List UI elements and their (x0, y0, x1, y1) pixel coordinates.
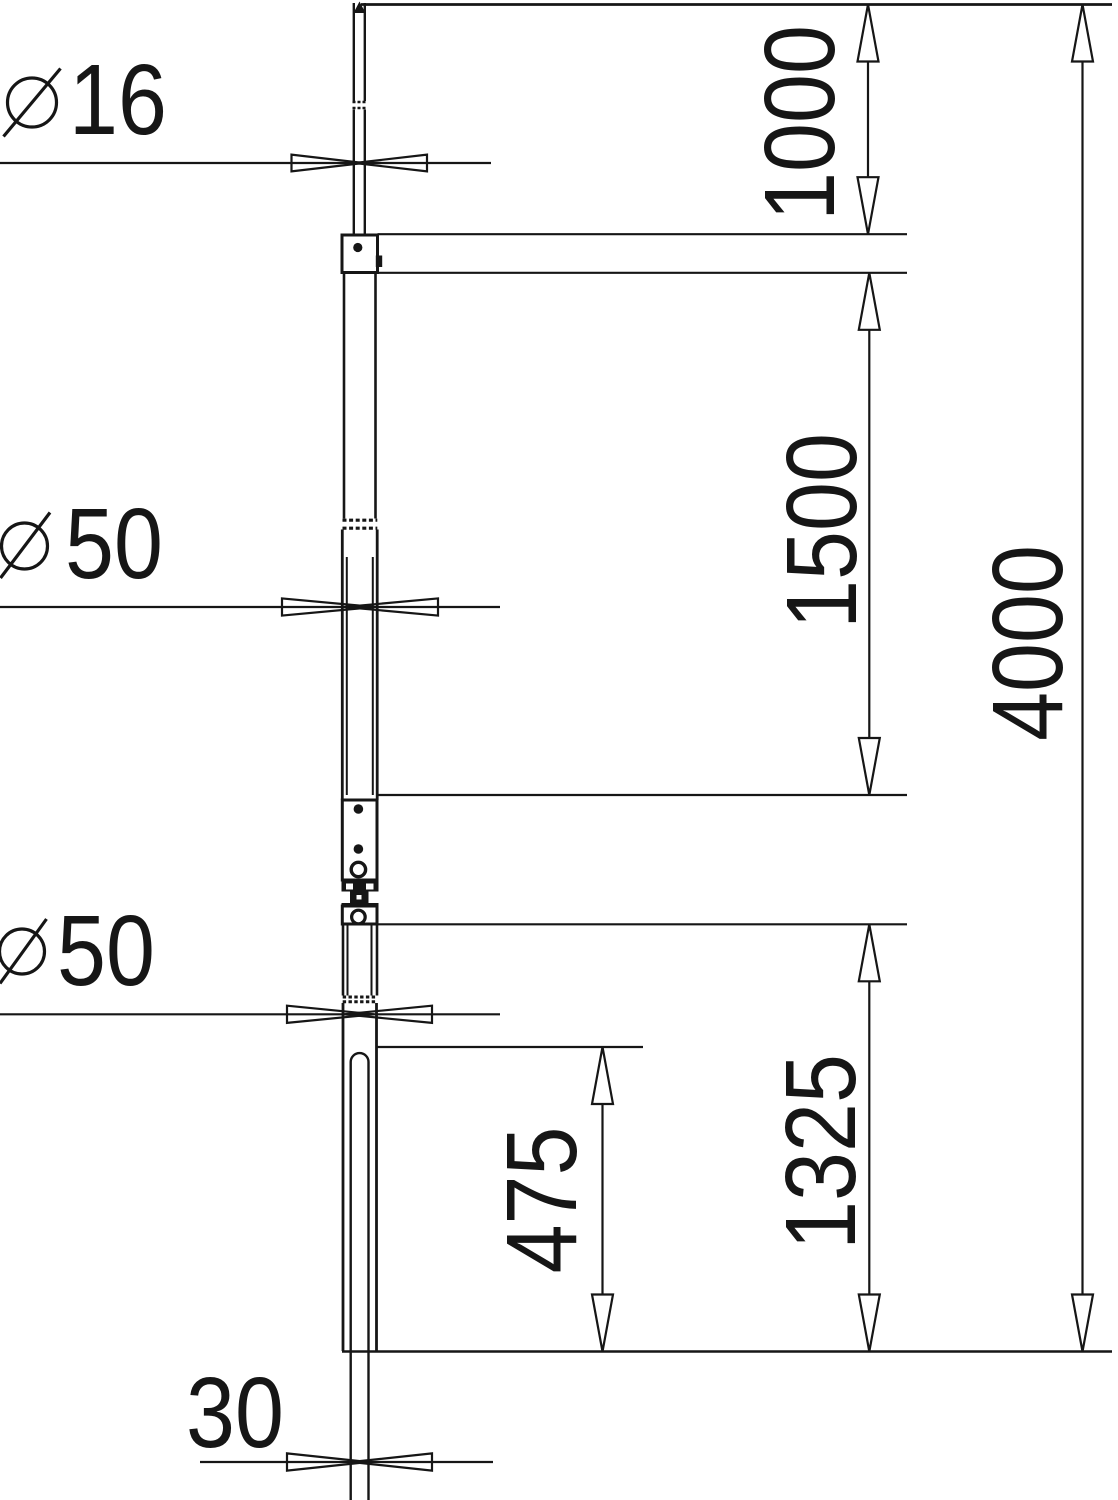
dim-label-middle-section-length: 1500 (766, 433, 877, 629)
dim-label-tip-diameter: 16 (69, 44, 167, 155)
mast-assembly (342, 2, 1113, 1500)
arrow-up-icon (859, 924, 880, 981)
arrow-down-icon (592, 1295, 613, 1352)
clamp-cutout-left (342, 892, 351, 904)
arrow-down-icon (859, 1295, 880, 1352)
dim-label-tip-section-length: 1000 (744, 25, 855, 221)
top-collar (342, 235, 378, 273)
diameter-symbol-icon (0, 919, 47, 984)
collar-rivet-dot (353, 243, 362, 252)
sleeve-rivet-dot-1 (354, 804, 364, 814)
dimension-lower-section-length: 1325 (765, 924, 880, 1351)
arrow-down-icon (1072, 1295, 1093, 1352)
extension-lines (377, 234, 908, 1047)
dimension-insertion-length: 475 (486, 1047, 613, 1352)
clamp-cutout-top-left (346, 884, 353, 890)
dim-label-earth-rod-width: 30 (186, 1357, 284, 1468)
arrow-up-icon (858, 5, 879, 62)
dim-label-total-length: 4000 (972, 545, 1083, 741)
dimension-tip-section-length: 1000 (744, 5, 879, 235)
arrow-up-icon (592, 1047, 613, 1104)
clamp-screw-slot (357, 895, 362, 900)
arrow-down-icon (859, 738, 880, 795)
clamp-fastener (342, 880, 379, 906)
dim-label-lower-section-length: 1325 (765, 1054, 876, 1250)
technical-drawing-page: 16 50 50 30 1000 (0, 0, 1118, 1500)
diameter-symbol-icon (1, 513, 51, 579)
arrow-up-icon (1072, 5, 1093, 62)
dimension-middle-section-length: 1500 (766, 273, 880, 795)
dimension-earth-rod-width: 30 (186, 1357, 493, 1471)
earth-rod (351, 1053, 369, 1500)
diameter-symbol-icon (4, 69, 61, 137)
dim-label-insertion-length: 475 (486, 1127, 597, 1274)
clamp-cutout-top-right (366, 884, 374, 890)
dimension-drawing-canvas: 16 50 50 30 1000 (0, 0, 1118, 1500)
collar-clamp-tab (376, 256, 382, 268)
dim-label-lower-tube-diameter: 50 (57, 895, 155, 1006)
dimension-upper-tube-diameter: 50 (0, 488, 500, 616)
arrow-up-icon (859, 273, 880, 330)
dim-label-upper-tube-diameter: 50 (65, 488, 163, 599)
clamp-cutout-right (369, 892, 379, 904)
sleeve-bolt-hole-1 (351, 862, 365, 876)
arrow-down-icon (858, 177, 879, 234)
sleeve-rivet-dot-2 (354, 844, 364, 854)
sleeve-bolt-hole-2 (352, 910, 366, 924)
dimension-lower-tube-diameter: 50 (0, 895, 500, 1023)
dimension-tip-diameter: 16 (0, 44, 491, 172)
dimension-total-length: 4000 (972, 5, 1093, 1352)
